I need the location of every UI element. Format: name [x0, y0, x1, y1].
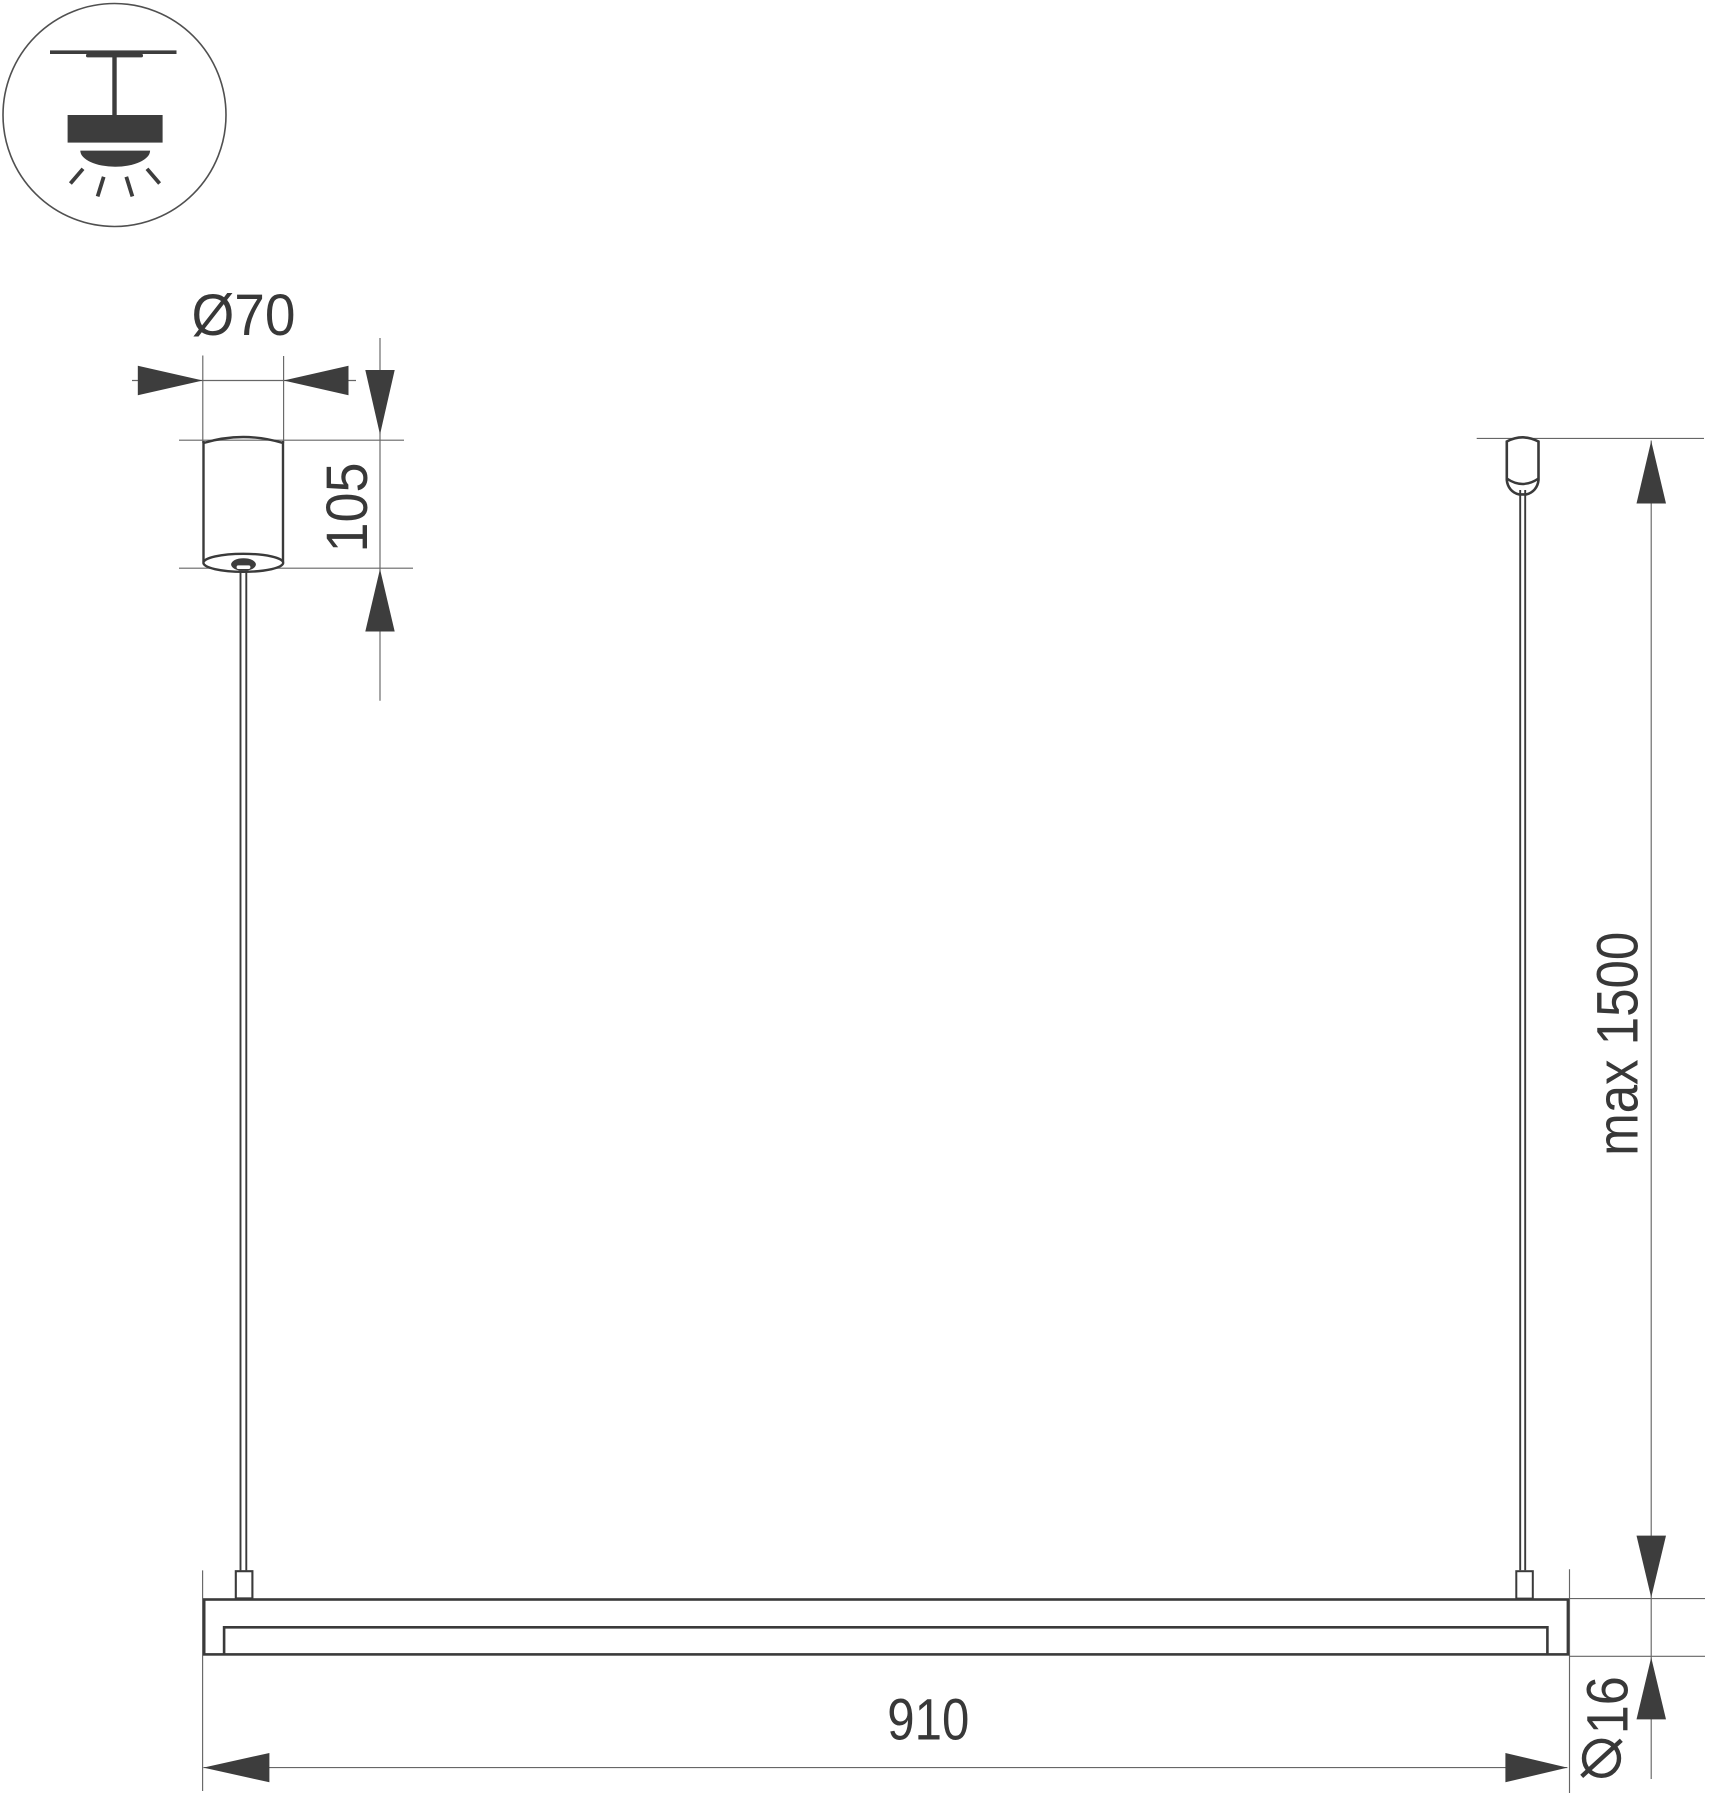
svg-text:105: 105: [315, 463, 380, 553]
svg-text:16: 16: [1575, 1676, 1640, 1734]
svg-text:Ø70: Ø70: [192, 283, 296, 348]
svg-text:max 1500: max 1500: [1586, 932, 1651, 1156]
svg-text:910: 910: [887, 1688, 969, 1753]
